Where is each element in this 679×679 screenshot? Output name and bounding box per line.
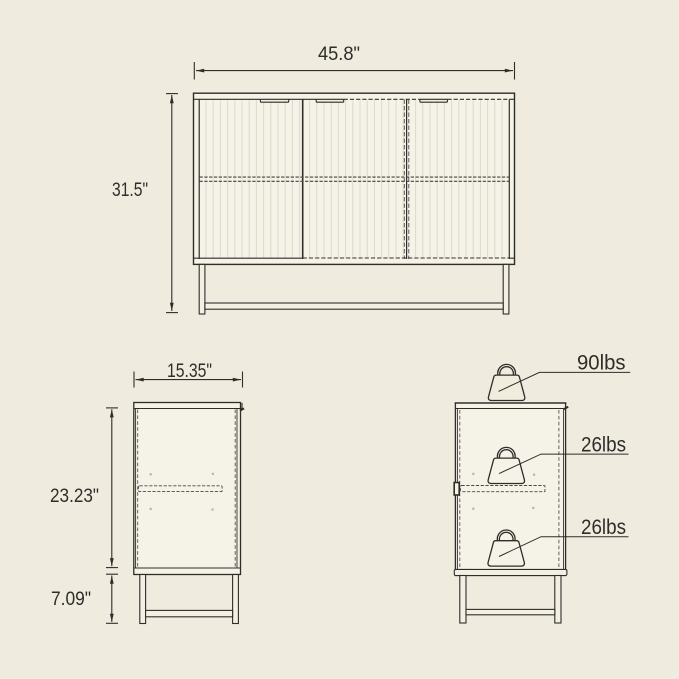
svg-text:15.35": 15.35" <box>167 361 212 382</box>
svg-text:31.5": 31.5" <box>112 180 148 201</box>
svg-text:26lbs: 26lbs <box>581 515 626 539</box>
svg-text:26lbs: 26lbs <box>581 432 626 456</box>
svg-text:45.8": 45.8" <box>318 44 360 65</box>
svg-text:23.23": 23.23" <box>50 486 99 507</box>
svg-text:90lbs: 90lbs <box>577 351 626 375</box>
svg-text:7.09": 7.09" <box>51 589 91 610</box>
